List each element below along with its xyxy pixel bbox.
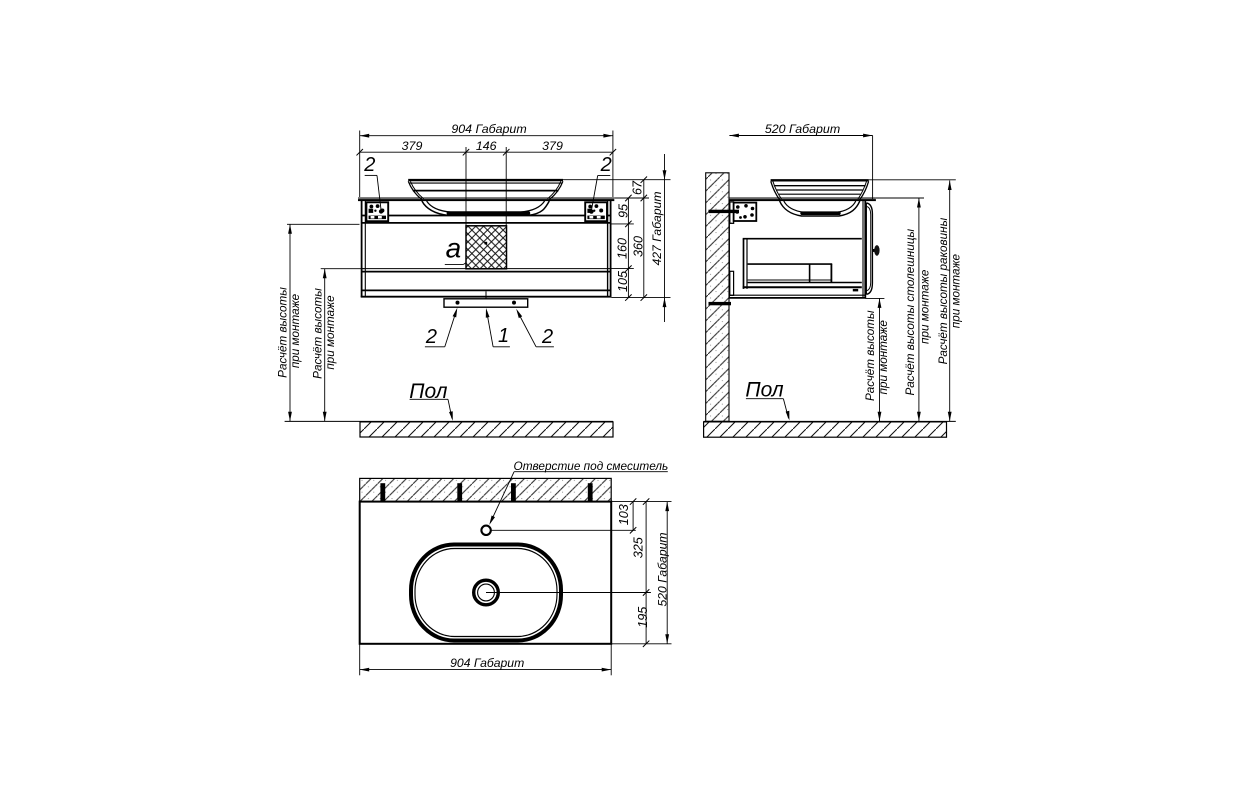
- svg-text:1: 1: [498, 325, 509, 347]
- svg-text:379: 379: [542, 139, 563, 153]
- svg-text:360: 360: [632, 236, 646, 257]
- svg-text:520 Габарит: 520 Габарит: [655, 532, 669, 606]
- svg-text:520 Габарит: 520 Габарит: [765, 122, 840, 136]
- svg-text:при монтаже: при монтаже: [324, 295, 337, 370]
- svg-text:2: 2: [363, 154, 375, 176]
- svg-text:Пол: Пол: [745, 378, 783, 401]
- svg-text:904 Габарит: 904 Габарит: [450, 656, 524, 670]
- svg-text:195: 195: [636, 606, 650, 628]
- svg-text:379: 379: [402, 139, 423, 153]
- svg-text:2: 2: [541, 326, 553, 348]
- svg-text:Расчёт высоты: Расчёт высоты: [277, 287, 290, 378]
- svg-text:при монтаже: при монтаже: [950, 253, 963, 328]
- svg-text:325: 325: [632, 536, 646, 558]
- svg-text:при монтаже: при монтаже: [919, 269, 932, 344]
- svg-text:427 Габарит: 427 Габарит: [650, 191, 664, 265]
- svg-text:Отверстие под смеситель: Отверстие под смеситель: [514, 459, 669, 473]
- svg-text:95: 95: [616, 203, 630, 218]
- svg-text:Расчёт высоты: Расчёт высоты: [864, 310, 877, 401]
- svg-text:105: 105: [616, 270, 630, 292]
- svg-text:67: 67: [631, 180, 645, 195]
- svg-text:Расчёт высоты раковины: Расчёт высоты раковины: [937, 217, 950, 364]
- svg-text:160: 160: [615, 238, 629, 259]
- svg-text:a: a: [446, 233, 462, 264]
- svg-text:146: 146: [476, 139, 497, 153]
- svg-text:103: 103: [617, 504, 631, 525]
- svg-text:Расчёт высоты: Расчёт высоты: [312, 288, 325, 379]
- svg-text:2: 2: [600, 154, 612, 176]
- svg-text:при монтаже: при монтаже: [877, 320, 890, 395]
- svg-text:904 Габарит: 904 Габарит: [451, 122, 526, 136]
- svg-text:Расчёт высоты столешницы: Расчёт высоты столешницы: [904, 228, 917, 395]
- svg-text:2: 2: [425, 326, 437, 348]
- svg-text:при монтаже: при монтаже: [289, 293, 302, 368]
